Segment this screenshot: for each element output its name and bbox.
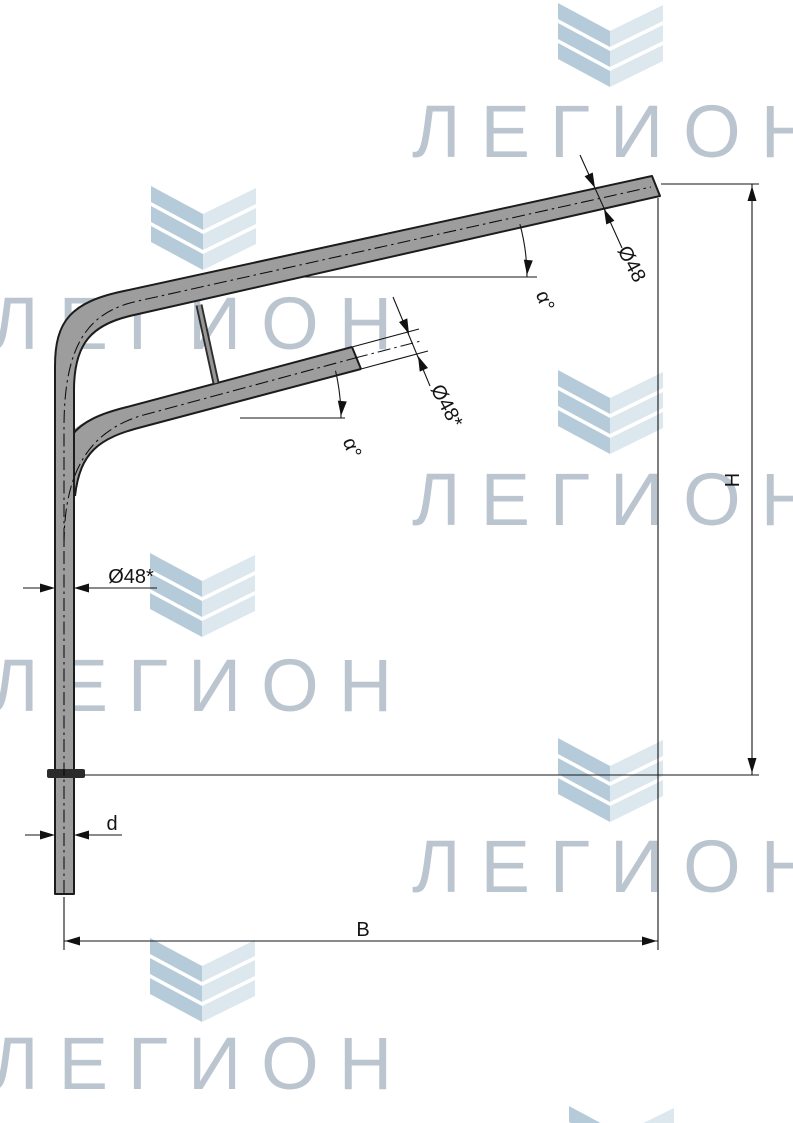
dim-post-diameter: Ø48* — [23, 566, 157, 593]
upper-arm-diameter-label: Ø48 — [613, 242, 650, 286]
arrowhead-icon — [40, 831, 55, 840]
post-and-upper-arm — [55, 176, 660, 894]
arrowhead-icon — [74, 584, 89, 593]
drawing-canvas: ЛЕГИОН ЛЕГИОН ЛЕГИОН ЛЕГИОН ЛЕГИОН ЛЕГИО… — [0, 0, 793, 1123]
dimensions: Ø48 Ø48* α° — [23, 155, 759, 950]
arrowhead-icon — [642, 937, 657, 946]
bracket-body — [47, 176, 660, 894]
lower-arm — [56, 347, 361, 510]
arrowhead-icon — [748, 758, 757, 773]
arrowhead-icon — [40, 584, 55, 593]
lower-arm-diameter-label: Ø48* — [426, 381, 467, 432]
dim-lower-arm-diameter: Ø48* — [352, 297, 467, 432]
post-diameter-label: Ø48* — [108, 566, 154, 588]
arrowhead-icon — [748, 186, 757, 201]
arrowhead-icon — [74, 831, 89, 840]
height-label: H — [722, 473, 744, 487]
arrowhead-icon — [523, 260, 533, 276]
strut-core — [199, 305, 216, 383]
span-label: B — [356, 919, 369, 941]
dimension-line — [393, 297, 430, 386]
base-diameter-label: d — [106, 813, 117, 835]
arrowhead-icon — [65, 937, 80, 946]
arrowhead-icon — [399, 318, 413, 335]
arrowhead-icon — [414, 354, 428, 371]
bracket-technical-drawing: Ø48 Ø48* α° — [0, 0, 793, 1123]
arrowhead-icon — [337, 401, 347, 417]
upper-arm-angle-label: α° — [531, 288, 558, 314]
dim-upper-arm-diameter: Ø48 — [580, 155, 650, 286]
lower-arm-angle-label: α° — [338, 435, 365, 461]
extension-line — [361, 351, 428, 369]
base-collar — [47, 769, 85, 778]
